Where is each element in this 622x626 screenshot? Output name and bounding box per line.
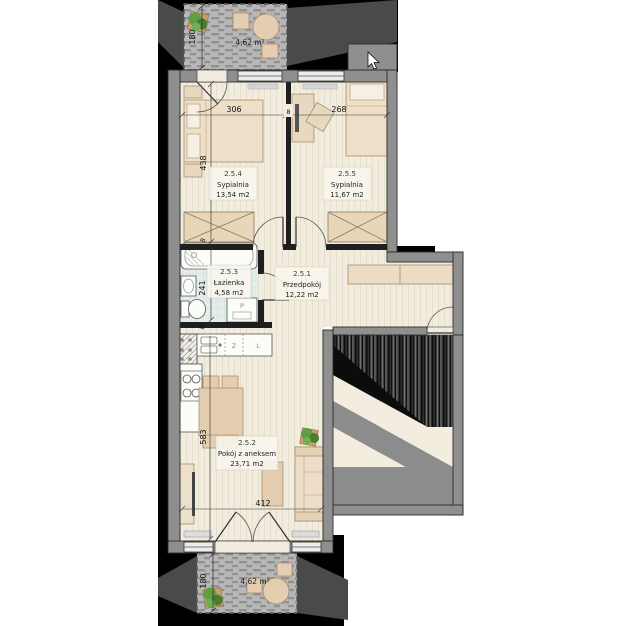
room-label-bathroom: 2.5.3 Łazienka 4,58 m2 — [207, 265, 251, 298]
wardrobe — [328, 212, 387, 242]
dining-table — [199, 388, 243, 436]
pillow — [350, 84, 384, 100]
svg-text:Z: Z — [232, 342, 237, 350]
room-label-living: 2.5.2 Pokój z aneksem 23,71 m2 — [216, 436, 278, 470]
balcony-top-area: 4,62 m² — [235, 38, 264, 47]
dim-living-width: 412 — [255, 499, 270, 508]
sofa — [295, 447, 323, 521]
svg-text:Łazienka: Łazienka — [213, 279, 245, 287]
window — [292, 542, 321, 552]
dim-bedroom2-width: 268 — [331, 105, 346, 114]
room-label-hallway: 2.5.1 Przedpokój 12,22 m2 — [275, 267, 329, 300]
window — [238, 71, 282, 81]
svg-text:13,54 m2: 13,54 m2 — [216, 191, 250, 199]
dim-bedroom1-width: 306 — [226, 105, 241, 114]
toilet-tank — [181, 301, 189, 317]
svg-text:2.5.5: 2.5.5 — [338, 170, 356, 178]
balcony-top-depth: 180 — [188, 29, 197, 44]
svg-text:Pokój z aneksem: Pokój z aneksem — [218, 450, 276, 458]
floor-plan-svg: 180 4,62 m² 180 4,62 m² — [0, 0, 622, 626]
dining-chair — [222, 376, 238, 389]
room-label-bedroom2: 2.5.5 Sypialnia 11,67 m2 — [323, 167, 371, 200]
balcony-table — [253, 14, 279, 40]
dim-living-depth: 583 — [199, 429, 208, 444]
svg-text:2.5.3: 2.5.3 — [220, 268, 238, 276]
room-label-bedroom1: 2.5.4 Sypialnia 13,54 m2 — [209, 167, 257, 200]
svg-text:2.5.2: 2.5.2 — [238, 439, 256, 447]
svg-text:11,67 m2: 11,67 m2 — [330, 191, 364, 199]
svg-text:P: P — [240, 302, 244, 310]
balcony-chair — [233, 13, 249, 29]
staircase — [333, 335, 453, 505]
radiator — [184, 531, 211, 537]
hallway-cabinet — [348, 265, 453, 284]
svg-text:4,58 m2: 4,58 m2 — [214, 289, 243, 297]
radiator — [292, 531, 319, 537]
balcony-bottom: 180 4,62 m² — [197, 552, 297, 613]
dining-chair — [203, 376, 219, 389]
tv-stand — [180, 464, 194, 524]
svg-text:2.5.1: 2.5.1 — [293, 270, 311, 278]
balcony-chair — [277, 563, 292, 576]
dim-bedroom1-depth: 438 — [199, 155, 208, 170]
svg-text:L: L — [256, 342, 260, 350]
balcony-top: 180 4,62 m² — [184, 4, 287, 70]
svg-text:Sypialnia: Sypialnia — [331, 181, 363, 189]
pillow — [187, 104, 200, 128]
monitor — [295, 104, 299, 132]
svg-text:23,71 m2: 23,71 m2 — [230, 460, 264, 468]
pillow — [187, 134, 200, 158]
balcony-bottom-area: 4,62 m² — [240, 577, 269, 586]
svg-text:12,22 m2: 12,22 m2 — [285, 291, 319, 299]
tv — [192, 472, 195, 516]
svg-text:Sypialnia: Sypialnia — [217, 181, 249, 189]
nightstand — [184, 86, 202, 98]
toilet — [189, 300, 206, 319]
radiator — [303, 84, 337, 89]
radiator — [248, 84, 278, 89]
window — [298, 71, 344, 81]
svg-text:2.5.4: 2.5.4 — [224, 170, 242, 178]
washing-machine: P — [227, 298, 257, 322]
floor-plan-page: 180 4,62 m² 180 4,62 m² — [0, 0, 622, 626]
window — [184, 542, 213, 552]
svg-text:Przedpokój: Przedpokój — [283, 281, 321, 289]
dim-wall: 8 — [286, 108, 290, 116]
plant-icon — [300, 428, 319, 447]
balcony-bottom-depth: 180 — [199, 573, 208, 588]
dim-bathroom-depth: 241 — [198, 280, 207, 295]
wardrobe — [184, 212, 254, 242]
